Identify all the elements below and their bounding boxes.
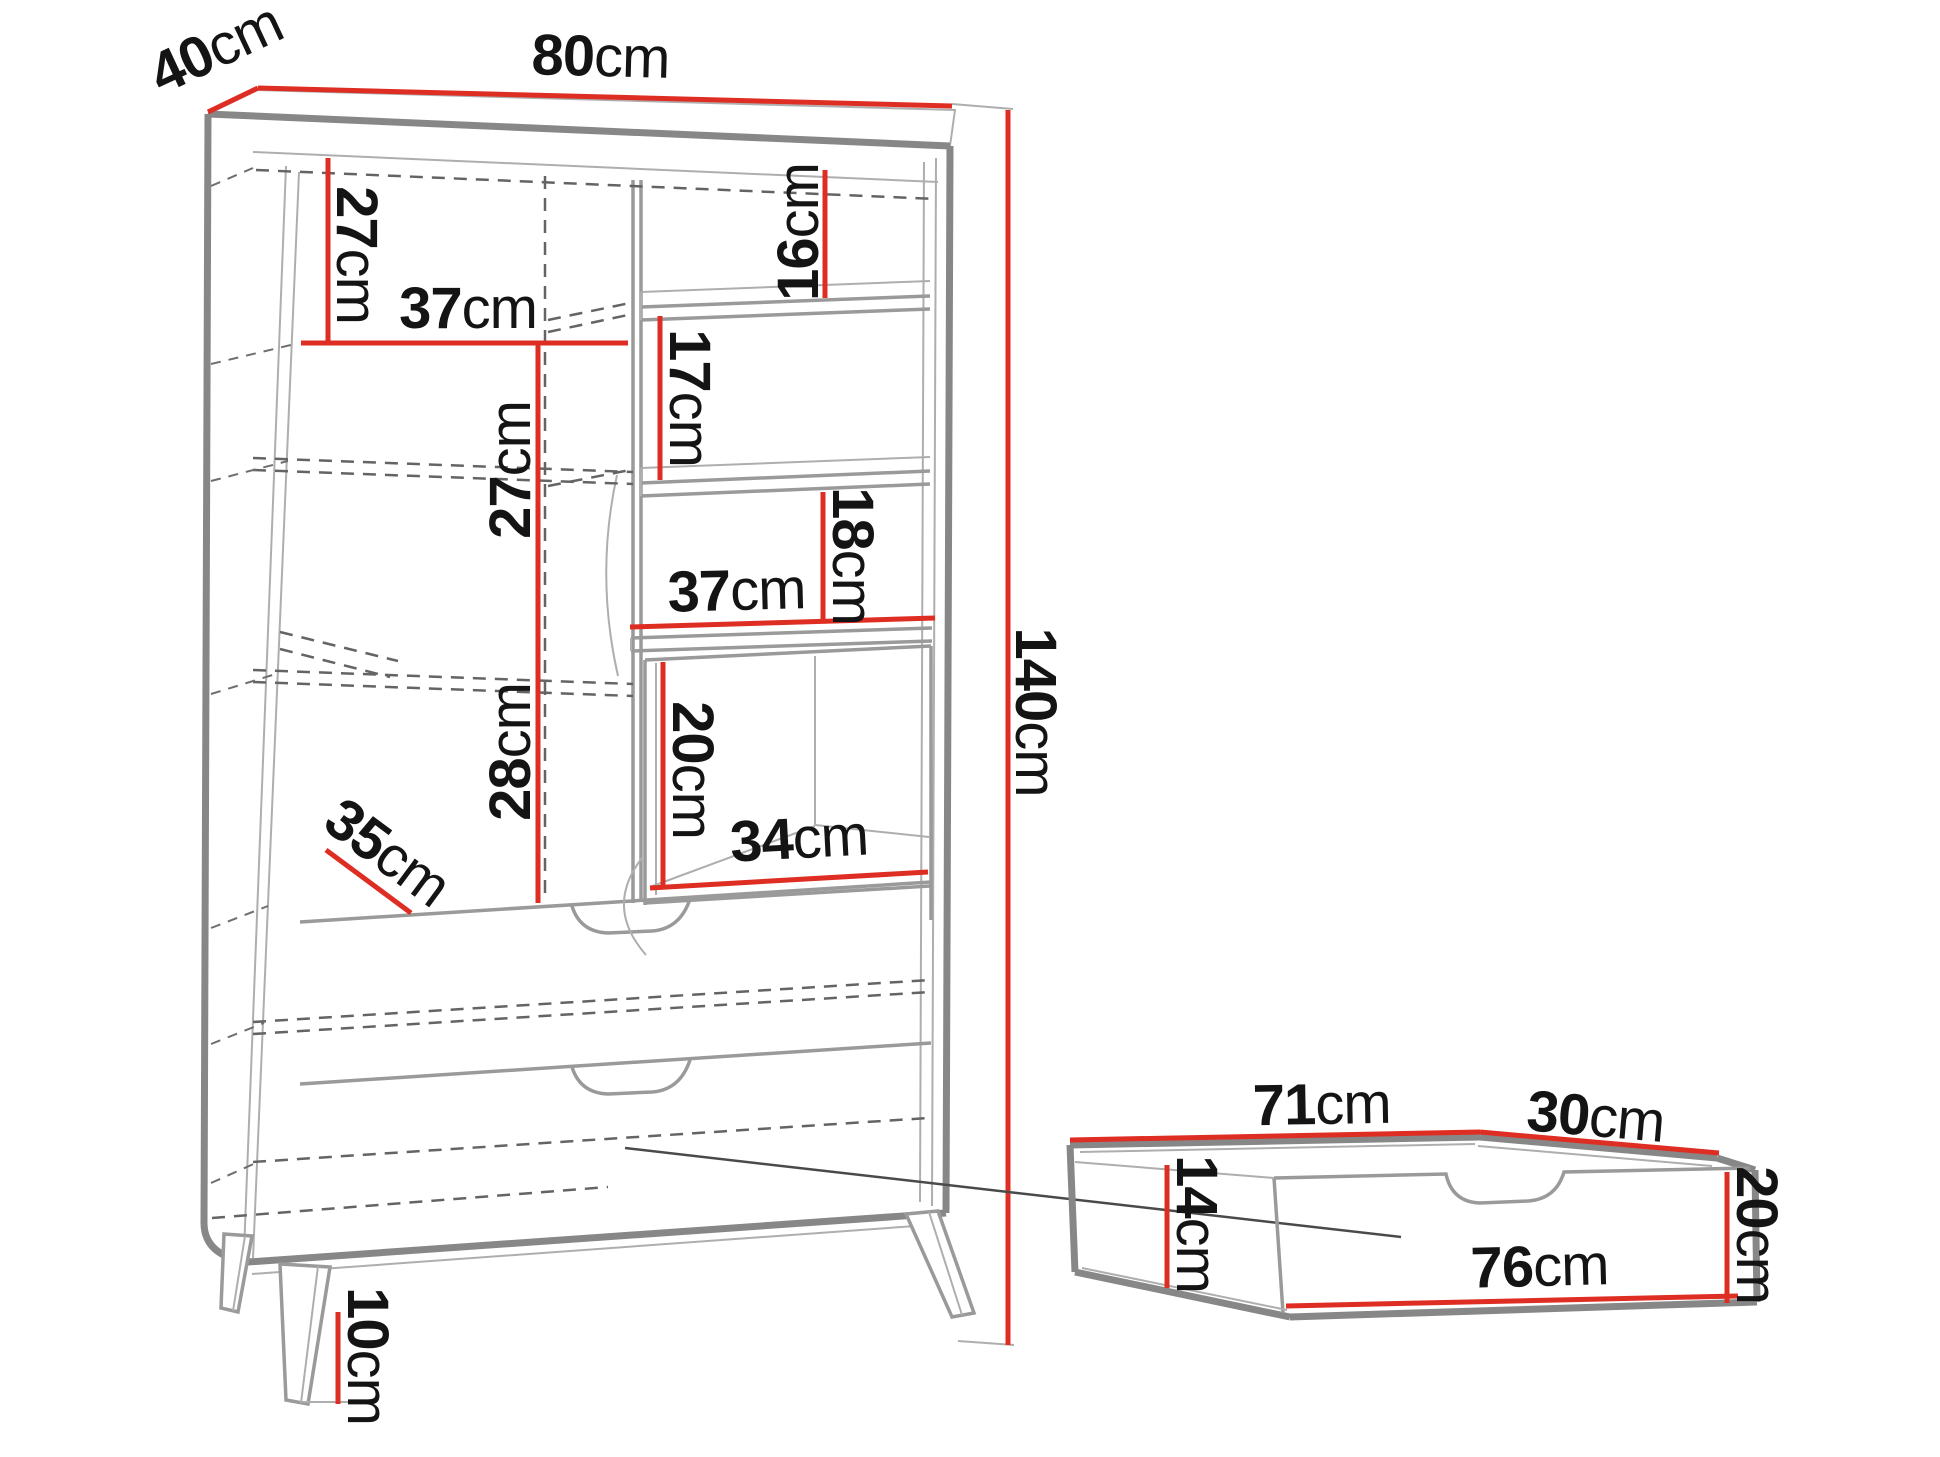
leg-back-left [221,1234,252,1312]
dim-label-17cm: 17cm [657,329,722,467]
side-panel-tick-7 [211,1162,258,1183]
leg-front-right [906,1211,974,1317]
hidden-left-shelf-b [253,670,633,684]
drawer-drawing: 71cm 30cm 14cm 20cm 76cm [1070,1071,1789,1317]
drawer-leader-line [625,1148,1401,1237]
dim-label-10cm-legs: 10cm [335,1287,400,1425]
hidden-left-shelf-a [253,458,633,472]
furniture-dimension-diagram: 40cm 80cm 27cm 37cm 16cm 17cm 27cm 18cm … [0,0,1940,1457]
dim-label-71cm: 71cm [1252,1071,1391,1138]
dim-label-140cm-height: 140cm [1003,627,1068,796]
drawer-left-edge [1070,1145,1075,1272]
shelf-2-front-top [641,471,930,483]
shelf-1-front-bottom [641,309,930,320]
cabinet-drawing: 40cm 80cm 27cm 37cm 16cm 17cm 27cm 18cm … [140,0,1068,1425]
dim-label-18cm: 18cm [820,487,885,625]
shelf-2-front-bottom [641,484,930,496]
dim-label-80cm-width: 80cm [531,22,670,91]
dim-label-34cm-cube: 34cm [728,802,869,874]
side-panel-tick-1 [211,168,253,186]
dim-label-37cm-top: 37cm [399,276,537,341]
hidden-drawer-shelf-a [253,980,930,1022]
hidden-drawer-shelf-a2 [253,992,930,1034]
hidden-depth-diagonal-b [280,649,390,677]
side-panel-tick-4 [211,673,279,694]
cabinet-left-inner-wall [253,172,299,1258]
side-panel-tick-2 [211,344,295,364]
cabinet-bottom-inner-edge [252,1224,943,1274]
shelf-3-front-top [631,628,932,638]
cabinet-ceiling-edge [253,152,938,182]
drawer2-top-edge [300,1043,931,1084]
dim-label-27cm-mid: 27cm [478,401,543,539]
hidden-bottom-back-edge [212,1187,608,1218]
hidden-depth-diagonal-a [280,632,398,661]
cabinet-right-inner-wall-2 [920,162,924,1202]
cabinet-right-edge [946,146,950,1213]
dim-label-14cm: 14cm [1164,1155,1229,1293]
leg-front-left [280,1264,330,1404]
dim-label-28cm: 28cm [478,683,543,821]
hidden-left-shelf-a2 [253,470,633,484]
door-handle-groove-upper [606,475,618,676]
dim-label-16cm: 16cm [766,163,831,301]
hidden-drawer-shelf-b [253,1118,928,1162]
dim-label-20cm-cube: 20cm [660,701,725,839]
cabinet-left-inner-wall-2 [244,166,286,1252]
dim-label-27cm-top-left: 27cm [324,186,389,324]
dim-label-37cm-mid: 37cm [667,556,806,625]
cabinet-hidden-lines [211,168,936,1218]
drawer-dimension-labels: 71cm 30cm 14cm 20cm 76cm [1164,1071,1789,1304]
height-extension-tick-top [952,104,1013,109]
dim-label-76cm: 76cm [1470,1232,1609,1301]
drawer-front-top-edge-with-handle-notch [1274,1168,1750,1203]
dim-label-35cm-diagonal: 35cm [313,785,462,919]
cabinet-bottom-edge [204,1213,946,1262]
side-panel-tick-5 [211,906,268,928]
drawer-front-left-edge [1274,1178,1283,1313]
dim-label-20cm-front: 20cm [1724,1166,1789,1304]
cabinet-left-edge [204,114,208,1224]
dim-label-30cm: 30cm [1524,1078,1667,1155]
diagram-canvas: 40cm 80cm 27cm 37cm 16cm 17cm 27cm 18cm … [0,0,1940,1457]
hidden-left-shelf-b2 [253,682,633,696]
